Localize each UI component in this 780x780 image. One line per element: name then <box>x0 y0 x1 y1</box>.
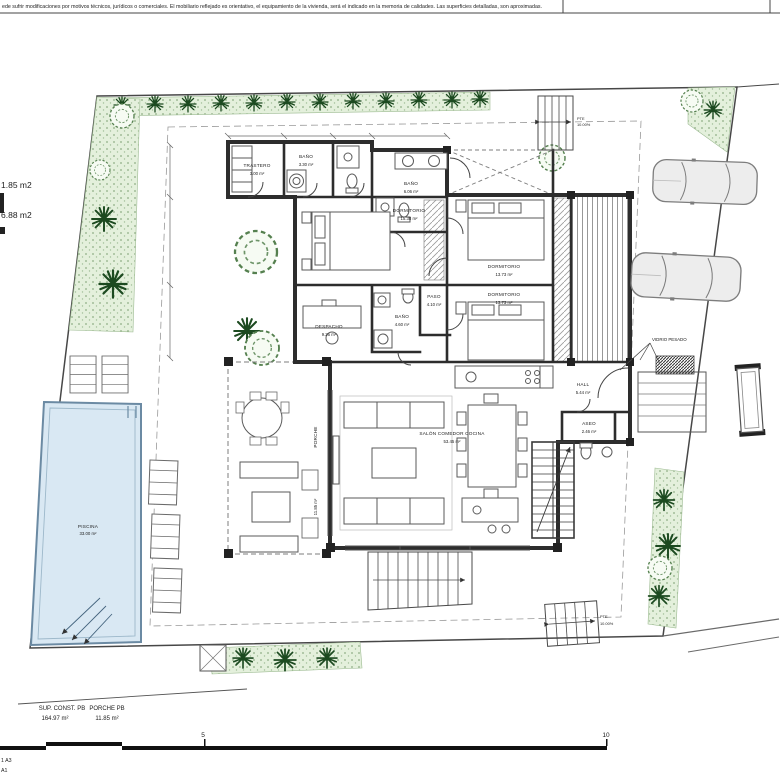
room-area-bano-c: 4.60 m² <box>395 322 410 327</box>
closet-strip <box>553 198 571 362</box>
room-area-hall: 5.44 m² <box>576 390 591 395</box>
pool: PISCINA 33.00 m² <box>31 402 141 645</box>
room-label-despacho: DESPACHO <box>315 324 343 329</box>
ramp-top-note-2: 10.00% <box>577 122 591 127</box>
site-area-label-1: 1.85 m2 <box>1 180 32 190</box>
room-label-bano-c: BAÑO <box>395 313 409 319</box>
kitchen-island <box>462 498 518 522</box>
room-area-dormitorio-b: 13.73 m² <box>496 272 514 277</box>
room-label-bano-b: BAÑO <box>404 180 418 186</box>
outdoor-armchair <box>302 470 318 490</box>
floor-plan-sheet: ede sufrir modificaciones por motivos té… <box>0 0 780 780</box>
room-area-salon: 53.45 m² <box>444 439 462 444</box>
side-gallery-pergola <box>571 195 630 362</box>
room-label-bano-a: BAÑO <box>299 153 313 159</box>
ramp-top-note-1: PTE <box>577 116 585 121</box>
wardrobe <box>424 200 444 280</box>
room-label-dormitorio-a: DORMITORIO <box>393 208 426 213</box>
disclaimer-text: ede sufrir modificaciones por motivos té… <box>2 4 542 10</box>
scale-tick-5: 5 <box>201 732 205 739</box>
room-area-aseo: 2.46 m² <box>582 429 597 434</box>
coffee-table <box>372 448 416 478</box>
outdoor-coffee-table <box>252 492 290 522</box>
summary-col2-value: 11.85 m² <box>95 716 118 722</box>
kitchen-counter <box>455 366 553 388</box>
room-label-paso: PASO <box>427 294 441 299</box>
outdoor-sofa <box>240 536 298 552</box>
room-area-piscina: 33.00 m² <box>80 531 98 536</box>
sheet-size-line2: A1 <box>1 768 8 774</box>
room-area-trastero: 3.00 m² <box>250 171 265 176</box>
parked-car-1 <box>652 157 758 207</box>
ramp-bottom-note-2: 10.00% <box>600 621 614 626</box>
summary-col1-label: SUP. CONST. PB <box>39 706 86 712</box>
room-label-dormitorio-c: DORMITORIO <box>488 292 521 297</box>
outdoor-armchair <box>302 518 318 538</box>
floor-plan-canvas: ede sufrir modificaciones por motivos té… <box>0 0 780 780</box>
heavy-glass-note: VIDRIO PESADO <box>652 337 687 342</box>
room-area-dormitorio-a: 15.38 m² <box>401 216 419 221</box>
room-label-aseo: ASEO <box>582 421 596 426</box>
summary-col2-label: PORCHE PB <box>89 706 124 712</box>
parked-car-2 <box>630 250 742 304</box>
outdoor-sofa <box>240 462 298 478</box>
summary-col1-value: 164.97 m² <box>41 716 68 722</box>
room-area-paso: 4.10 m² <box>427 302 442 307</box>
planter-box <box>200 645 226 671</box>
ramp-bottom-note-1: PTE <box>600 614 608 619</box>
room-label-piscina: PISCINA <box>78 524 99 529</box>
room-label-hall: HALL <box>577 382 590 387</box>
room-area-porche: 11.85 m² <box>313 498 318 515</box>
room-area-dormitorio-c: 13.73 m² <box>496 300 514 305</box>
dining-table <box>468 405 516 487</box>
room-label-dormitorio-b: DORMITORIO <box>488 264 521 269</box>
tv-unit <box>333 436 339 484</box>
sofa <box>344 402 444 428</box>
room-area-bano-a: 3.30 m² <box>299 162 314 167</box>
room-area-bano-b: 6.06 m² <box>404 189 419 194</box>
scale-tick-10: 10 <box>602 732 610 739</box>
site-area-label-2: 6.88 m2 <box>1 210 32 220</box>
room-label-salon: SALÓN COMEDOR COCINA <box>419 430 485 436</box>
room-label-trastero: TRASTERO <box>243 163 270 168</box>
sofa <box>344 498 444 524</box>
sheet-size-line1: 1 A3 <box>1 758 12 764</box>
room-label-porche: PORCHE <box>313 426 318 447</box>
outdoor-round-table <box>242 398 282 438</box>
room-area-despacho: 9.26 m² <box>322 332 337 337</box>
